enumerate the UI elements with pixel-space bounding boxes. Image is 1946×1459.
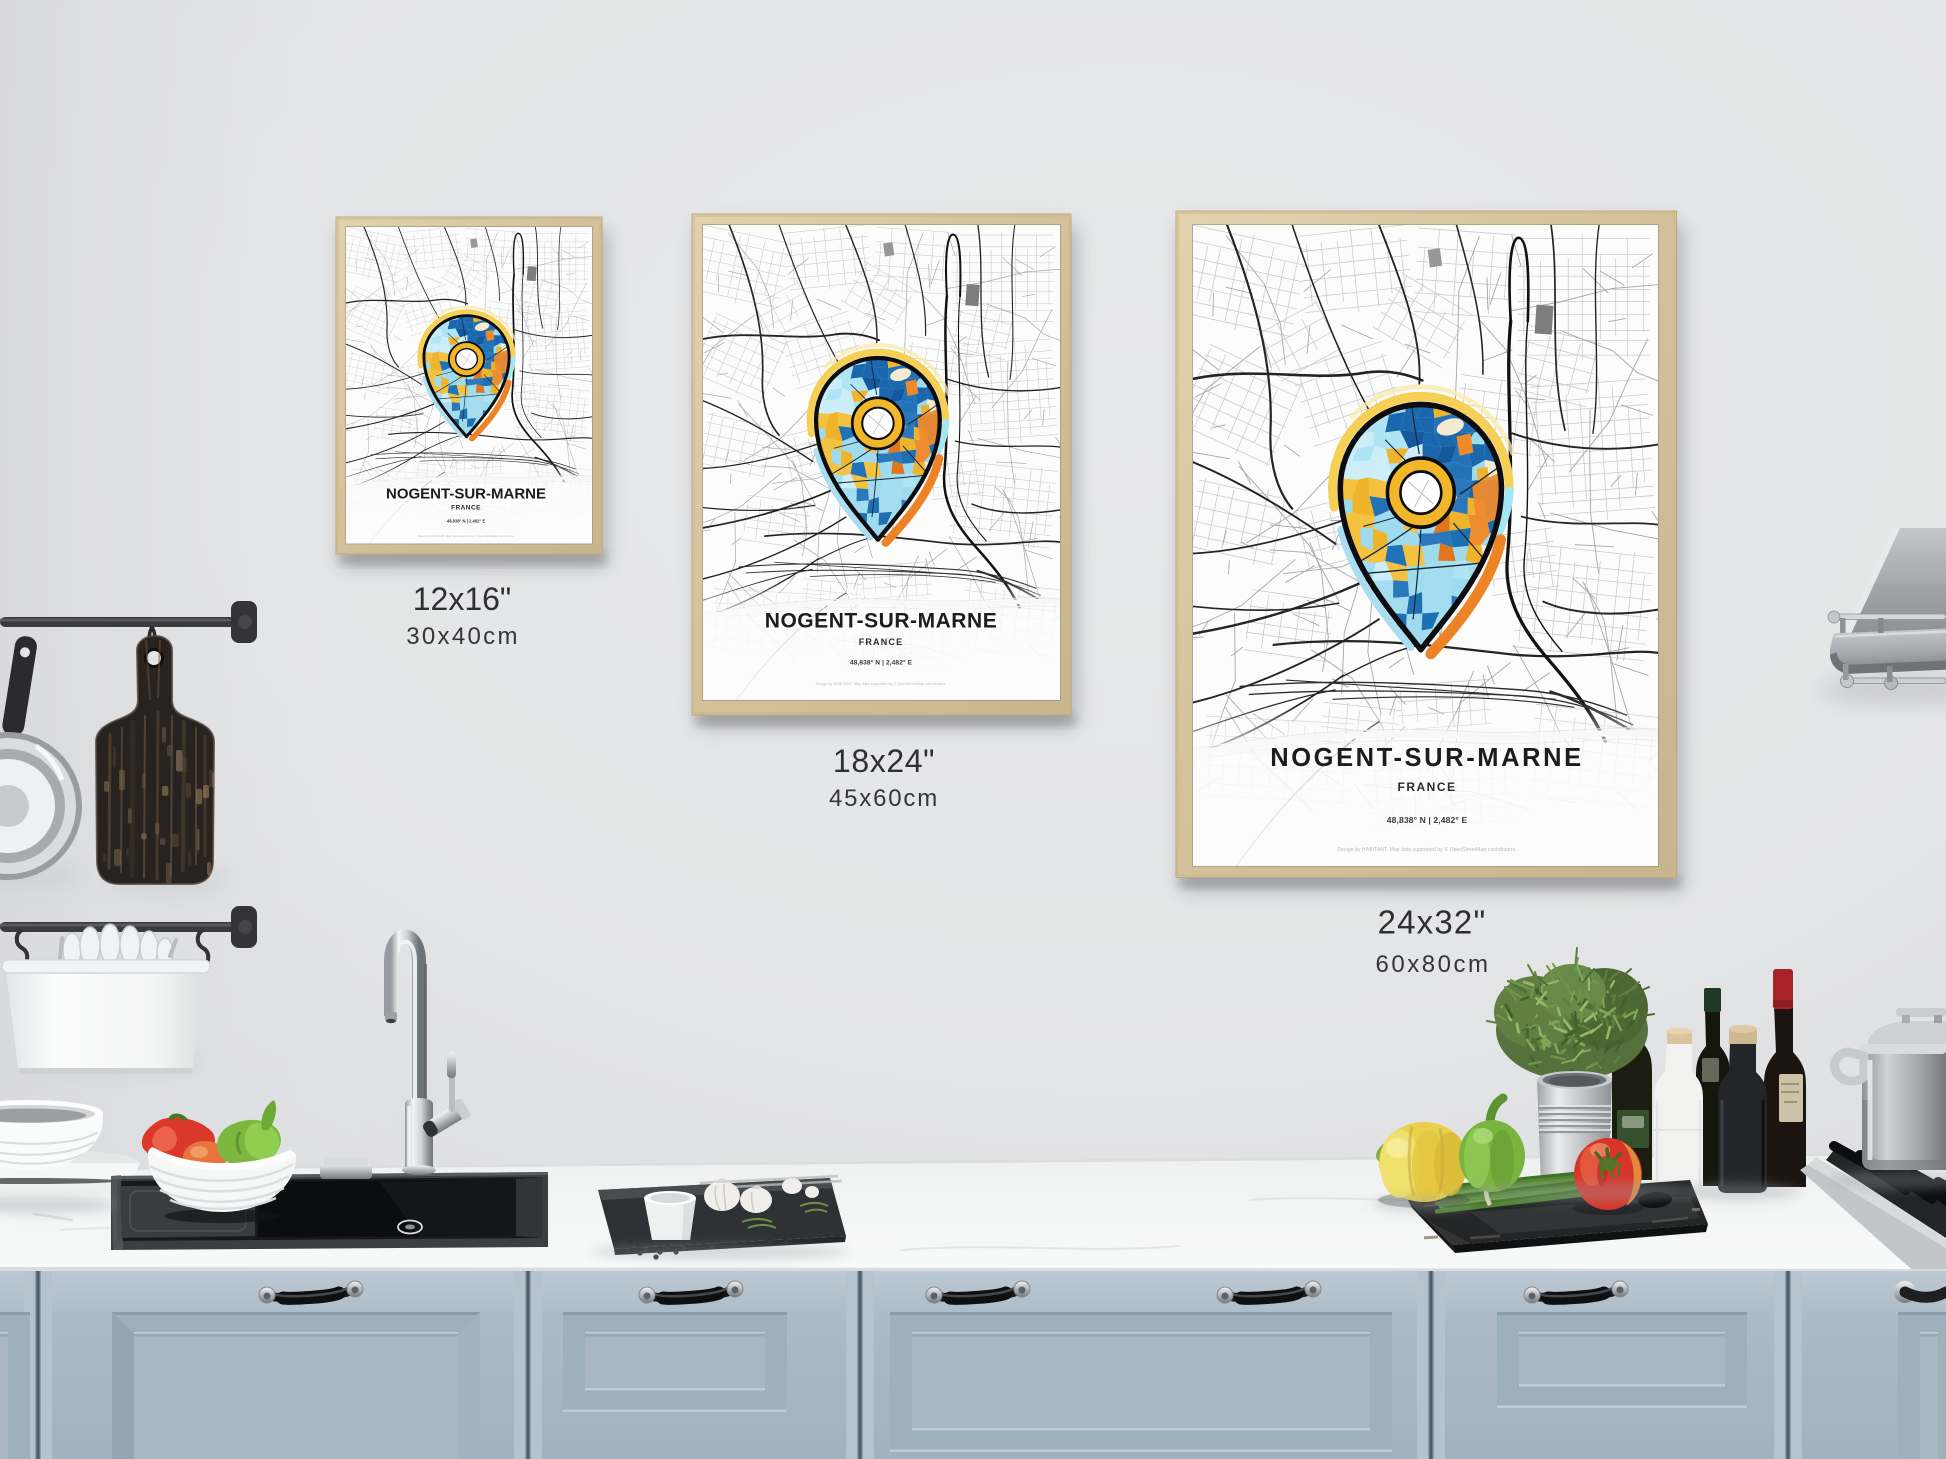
svg-text:FRANCE: FRANCE [1398, 780, 1457, 794]
svg-text:48,838° N | 2,482° E: 48,838° N | 2,482° E [447, 519, 485, 524]
svg-text:60x80cm: 60x80cm [1376, 951, 1491, 978]
svg-text:48,838° N | 2,482° E: 48,838° N | 2,482° E [850, 659, 913, 667]
svg-text:45x60cm: 45x60cm [829, 785, 939, 812]
svg-text:NOGENT-SUR-MARNE: NOGENT-SUR-MARNE [386, 486, 546, 503]
svg-text:12x16": 12x16" [413, 581, 512, 617]
svg-text:FRANCE: FRANCE [859, 637, 904, 647]
svg-text:48,838° N | 2,482° E: 48,838° N | 2,482° E [1387, 815, 1468, 825]
svg-text:Design by HABITANT. Map data s: Design by HABITANT. Map data supported b… [418, 534, 515, 538]
svg-text:NOGENT-SUR-MARNE: NOGENT-SUR-MARNE [765, 610, 997, 633]
svg-text:24x32": 24x32" [1378, 904, 1487, 941]
svg-text:NOGENT-SUR-MARNE: NOGENT-SUR-MARNE [1270, 744, 1584, 772]
svg-text:Design by HABITANT. Map data s: Design by HABITANT. Map data supported b… [816, 682, 947, 686]
svg-text:Design by HABITANT. Map data s: Design by HABITANT. Map data supported b… [1337, 846, 1516, 853]
svg-text:30x40cm: 30x40cm [406, 623, 519, 650]
svg-text:18x24": 18x24" [833, 743, 935, 779]
svg-text:FRANCE: FRANCE [451, 505, 481, 512]
